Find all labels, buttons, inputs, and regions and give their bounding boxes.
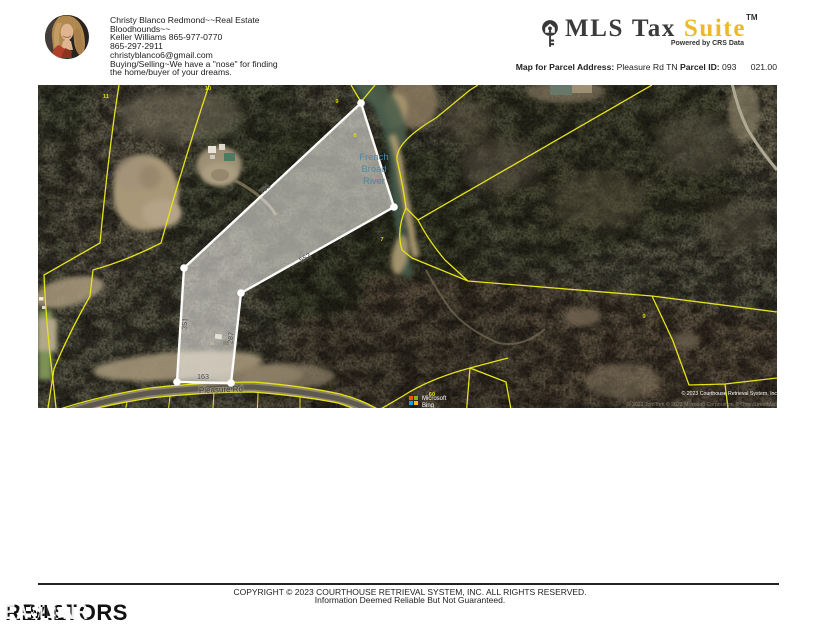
svg-text:© 2023 Courthouse Retrieval Sy: © 2023 Courthouse Retrieval System, Inc — [681, 390, 777, 397]
svg-text:287: 287 — [225, 332, 235, 345]
svg-text:163: 163 — [197, 372, 209, 381]
svg-text:351: 351 — [179, 318, 189, 331]
svg-text:Bing: Bing — [422, 403, 434, 408]
svg-text:Broad: Broad — [361, 163, 386, 174]
svg-text:7: 7 — [380, 237, 383, 243]
svg-text:Microsoft: Microsoft — [422, 396, 447, 402]
svg-text:French: French — [359, 151, 388, 162]
svg-text:10: 10 — [205, 86, 211, 92]
svg-text:© 2023 TomTom © 2023 Microsoft: © 2023 TomTom © 2023 Microsoft Corporati… — [627, 401, 777, 408]
svg-text:Pleasure Rd: Pleasure Rd — [199, 384, 243, 395]
svg-text:River: River — [363, 175, 385, 186]
svg-text:11: 11 — [103, 94, 110, 100]
